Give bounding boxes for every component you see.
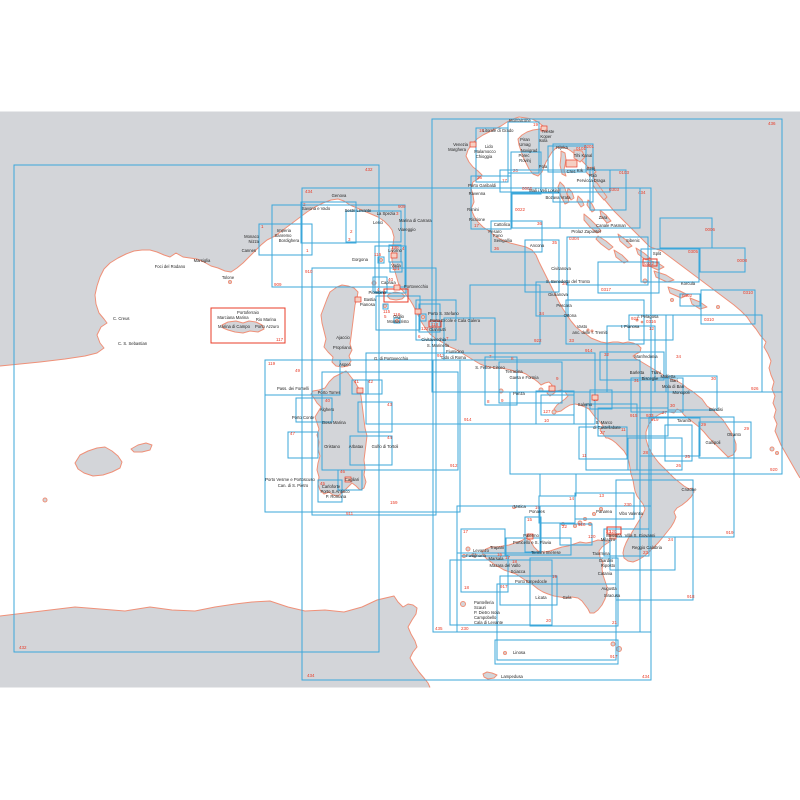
svg-text:0303: 0303 (609, 187, 620, 192)
svg-text:22: 22 (562, 524, 568, 529)
svg-text:21: 21 (612, 620, 618, 625)
svg-text:Pesaro: Pesaro (488, 229, 502, 234)
svg-text:35: 35 (552, 240, 558, 245)
svg-text:32: 32 (604, 352, 610, 357)
svg-text:Nizza: Nizza (249, 239, 260, 244)
svg-text:0304: 0304 (569, 236, 580, 241)
svg-text:Senj: Senj (587, 166, 595, 171)
svg-text:26: 26 (676, 463, 682, 468)
svg-text:117: 117 (276, 337, 284, 342)
svg-text:909: 909 (274, 282, 282, 287)
svg-text:Porticello e S. Flavia: Porticello e S. Flavia (513, 540, 552, 545)
svg-text:Vasto: Vasto (577, 324, 588, 329)
svg-text:Porto Vesme e Portoscuso: Porto Vesme e Portoscuso (265, 477, 315, 482)
svg-text:Pola: Pola (539, 164, 548, 169)
svg-text:920: 920 (770, 467, 778, 472)
svg-text:Bozava Vrata: Bozava Vrata (546, 195, 572, 200)
svg-text:912: 912 (450, 463, 458, 468)
svg-text:933: 933 (646, 413, 654, 418)
svg-text:Catania: Catania (598, 571, 613, 576)
svg-text:40: 40 (325, 398, 331, 403)
svg-text:Brindisi: Brindisi (709, 407, 723, 412)
svg-text:919: 919 (726, 530, 734, 535)
svg-text:30: 30 (711, 376, 717, 381)
svg-text:Gela: Gela (563, 595, 573, 600)
svg-text:Trapani: Trapani (490, 545, 504, 550)
svg-text:Porto Ercole e Cala Galera: Porto Ercole e Cala Galera (430, 318, 481, 323)
svg-text:Can. di S. Pietro: Can. di S. Pietro (278, 483, 309, 488)
svg-text:0305: 0305 (688, 249, 699, 254)
svg-text:0316: 0316 (646, 319, 657, 324)
svg-text:122: 122 (421, 326, 429, 331)
svg-text:Portovecchio: Portovecchio (404, 284, 429, 289)
svg-text:Chioggia: Chioggia (476, 154, 493, 159)
svg-text:Crotone: Crotone (682, 487, 698, 492)
svg-text:Montecristo: Montecristo (387, 319, 409, 324)
svg-text:0310: 0310 (704, 317, 715, 322)
svg-text:19: 19 (552, 574, 558, 579)
svg-text:25: 25 (685, 454, 691, 459)
svg-text:120: 120 (588, 534, 596, 539)
svg-text:Krk: Krk (577, 168, 584, 173)
svg-text:15: 15 (527, 517, 533, 522)
svg-text:17: 17 (463, 529, 469, 534)
svg-text:46: 46 (340, 469, 346, 474)
svg-text:Senigallia: Senigallia (494, 238, 513, 243)
svg-text:434: 434 (642, 674, 650, 679)
svg-text:Marsiglia: Marsiglia (194, 258, 211, 263)
svg-text:436: 436 (768, 121, 776, 126)
svg-text:12: 12 (649, 326, 655, 331)
svg-text:Prolaz Zapuntel: Prolaz Zapuntel (571, 229, 600, 234)
svg-text:Termini Imerese: Termini Imerese (531, 550, 561, 555)
svg-text:36: 36 (537, 221, 543, 226)
svg-text:Tolone: Tolone (222, 275, 235, 280)
svg-text:Messina: Messina (606, 533, 622, 538)
svg-text:Lerici: Lerici (373, 220, 383, 225)
svg-text:Propriano: Propriano (333, 345, 352, 350)
svg-text:Cagliari: Cagliari (345, 477, 359, 482)
svg-text:Pervicca Draga: Pervicca Draga (577, 178, 606, 183)
svg-text:Marciana Marina: Marciana Marina (217, 315, 249, 320)
svg-text:Vada: Vada (391, 263, 401, 268)
svg-text:Rovinj: Rovinj (519, 158, 531, 163)
svg-text:0006: 0006 (705, 227, 716, 232)
svg-text:Isola: Isola (539, 138, 549, 143)
svg-text:Arbatax: Arbatax (349, 444, 364, 449)
svg-text:119: 119 (268, 361, 276, 366)
svg-text:16: 16 (497, 552, 503, 557)
svg-text:di Castellabate: di Castellabate (593, 425, 621, 430)
svg-text:Cres: Cres (567, 169, 576, 174)
svg-text:159: 159 (390, 500, 398, 505)
svg-text:Terracina: Terracina (505, 369, 523, 374)
svg-text:13: 13 (599, 493, 605, 498)
svg-text:Riccione: Riccione (469, 217, 486, 222)
svg-text:Siracusa: Siracusa (604, 593, 621, 598)
svg-text:918: 918 (687, 594, 695, 599)
svg-text:127: 127 (543, 409, 551, 414)
svg-text:Ajaccio: Ajaccio (336, 335, 350, 340)
svg-text:Pescara: Pescara (556, 303, 572, 308)
svg-text:909: 909 (398, 204, 406, 209)
svg-text:910: 910 (305, 269, 313, 274)
svg-text:Porto S. Stefano: Porto S. Stefano (428, 311, 459, 316)
svg-text:Porto Torres: Porto Torres (318, 390, 341, 395)
svg-text:C. Creus: C. Creus (113, 316, 130, 321)
svg-text:43: 43 (387, 402, 393, 407)
svg-text:Bordighera: Bordighera (279, 238, 300, 243)
svg-text:926: 926 (751, 386, 759, 391)
svg-text:Sciacca: Sciacca (511, 569, 526, 574)
svg-text:911: 911 (346, 511, 354, 516)
svg-text:Novigrad: Novigrad (521, 148, 538, 153)
svg-text:Salerno: Salerno (578, 402, 593, 407)
svg-text:Cannes: Cannes (242, 248, 256, 253)
svg-text:34: 34 (539, 311, 545, 316)
svg-text:0310: 0310 (743, 290, 754, 295)
svg-text:Fiumicino: Fiumicino (446, 349, 465, 354)
svg-text:Gorgona: Gorgona (352, 257, 369, 262)
svg-text:Pass. dei Fornelli: Pass. dei Fornelli (277, 386, 309, 391)
svg-text:36: 36 (494, 246, 500, 251)
svg-text:17: 17 (474, 223, 480, 228)
svg-text:41: 41 (354, 379, 360, 384)
svg-text:434: 434 (638, 190, 646, 195)
svg-text:20: 20 (546, 618, 552, 623)
svg-text:Capraia: Capraia (381, 280, 396, 285)
svg-text:Panarea: Panarea (596, 509, 613, 514)
svg-text:917: 917 (500, 584, 508, 589)
svg-text:19: 19 (533, 122, 539, 127)
svg-text:Bastia: Bastia (364, 297, 376, 302)
svg-text:Ancona: Ancona (530, 243, 545, 248)
svg-text:Taranto: Taranto (677, 418, 692, 423)
svg-text:Giannutri: Giannutri (429, 327, 446, 332)
svg-text:0322: 0322 (644, 261, 655, 266)
svg-text:Marina di Carrara: Marina di Carrara (399, 218, 432, 223)
svg-text:anc. delle I. Tremiti: anc. delle I. Tremiti (572, 330, 607, 335)
svg-text:Mali i Veli Losinj: Mali i Veli Losinj (529, 188, 559, 193)
svg-text:Monfalcone: Monfalcone (509, 118, 531, 123)
svg-text:Porto Conte: Porto Conte (292, 415, 315, 420)
svg-text:Favignana: Favignana (466, 553, 486, 558)
svg-text:Umag: Umag (519, 142, 531, 147)
svg-text:G. di Portovecchio: G. di Portovecchio (374, 356, 409, 361)
svg-text:918: 918 (578, 522, 586, 527)
svg-text:922: 922 (534, 338, 542, 343)
svg-text:Viareggio: Viareggio (398, 227, 416, 232)
svg-text:S. Felice Circeo: S. Felice Circeo (475, 365, 505, 370)
svg-text:24: 24 (668, 537, 674, 542)
svg-text:Otranto: Otranto (727, 432, 742, 437)
svg-text:Zara: Zara (599, 215, 608, 220)
svg-text:Marina di Campo: Marina di Campo (218, 324, 251, 329)
svg-text:432: 432 (19, 645, 27, 650)
svg-text:Porto Garibaldi: Porto Garibaldi (468, 183, 496, 188)
svg-text:11: 11 (621, 427, 626, 432)
svg-text:Cala di Levante: Cala di Levante (474, 620, 504, 625)
svg-text:Lido di Roma: Lido di Roma (441, 355, 466, 360)
svg-text:917: 917 (610, 654, 618, 659)
svg-text:Manfredonia: Manfredonia (634, 354, 658, 359)
svg-text:434: 434 (305, 189, 313, 194)
svg-text:434: 434 (307, 673, 315, 678)
svg-text:Civitavecchia: Civitavecchia (421, 337, 446, 342)
svg-text:Monopoli: Monopoli (673, 390, 690, 395)
svg-text:0103: 0103 (619, 170, 630, 175)
svg-text:Rimini: Rimini (467, 207, 479, 212)
svg-text:Gaeta e Formia: Gaeta e Formia (509, 375, 539, 380)
svg-text:Ustica: Ustica (514, 504, 526, 509)
svg-text:Ponza: Ponza (513, 391, 526, 396)
svg-text:47: 47 (290, 431, 296, 436)
svg-text:Trani: Trani (651, 370, 660, 375)
svg-text:Ortona: Ortona (564, 313, 577, 318)
svg-text:Golfo di Tortoli: Golfo di Tortoli (372, 444, 399, 449)
svg-text:44: 44 (387, 435, 393, 440)
svg-text:Reggio Calabria: Reggio Calabria (632, 545, 663, 550)
svg-text:S. Marinella: S. Marinella (427, 343, 450, 348)
svg-text:18: 18 (512, 559, 518, 564)
svg-text:Sibenic: Sibenic (626, 238, 640, 243)
svg-text:Genova: Genova (332, 193, 347, 198)
svg-text:Linosa: Linosa (513, 650, 526, 655)
svg-text:Mola di Bari: Mola di Bari (662, 384, 684, 389)
svg-text:31: 31 (634, 378, 640, 383)
svg-text:Pianosa: Pianosa (360, 302, 376, 307)
svg-text:Giglio: Giglio (393, 314, 404, 319)
svg-text:0201: 0201 (584, 144, 595, 149)
svg-text:34: 34 (676, 354, 682, 359)
svg-text:Augusta: Augusta (601, 586, 617, 591)
svg-text:Canale Pasman: Canale Pasman (596, 223, 626, 228)
svg-text:914: 914 (464, 417, 472, 422)
svg-text:Aspeo: Aspeo (339, 362, 352, 367)
svg-text:49: 49 (295, 368, 301, 373)
svg-text:La Spezia: La Spezia (377, 211, 396, 216)
svg-text:Licata: Licata (535, 595, 547, 600)
svg-text:C. S. Sebastian: C. S. Sebastian (118, 341, 148, 346)
svg-text:Cattolica: Cattolica (494, 222, 511, 227)
svg-text:29: 29 (701, 422, 707, 427)
svg-text:Villa S. Giovanni: Villa S. Giovanni (625, 533, 656, 538)
svg-text:Sestri Levante: Sestri Levante (345, 208, 372, 213)
svg-text:Split: Split (653, 251, 662, 256)
svg-text:Tihi Kanal: Tihi Kanal (574, 153, 593, 158)
svg-text:14: 14 (569, 496, 575, 501)
svg-text:23: 23 (643, 550, 649, 555)
svg-text:Piombino: Piombino (369, 290, 387, 295)
svg-text:30: 30 (670, 403, 676, 408)
svg-text:Vibo Valentia: Vibo Valentia (619, 511, 644, 516)
svg-text:26: 26 (477, 175, 483, 180)
svg-text:S. Benedetto del Tronto: S. Benedetto del Tronto (546, 279, 591, 284)
svg-text:Rijeka: Rijeka (556, 145, 568, 150)
svg-text:Alghero: Alghero (320, 407, 335, 412)
svg-text:Ponares: Ponares (529, 509, 545, 514)
svg-text:Molfetta: Molfetta (661, 374, 677, 379)
svg-text:33: 33 (569, 338, 575, 343)
svg-text:Litorale di Grado: Litorale di Grado (483, 128, 515, 133)
svg-text:Bosa Marina: Bosa Marina (322, 420, 346, 425)
svg-text:Marghera: Marghera (448, 147, 467, 152)
svg-text:914: 914 (585, 348, 593, 353)
svg-text:230: 230 (461, 626, 469, 631)
svg-text:230: 230 (624, 502, 632, 507)
svg-text:Livorno: Livorno (388, 248, 402, 253)
svg-text:Porto Azzuro: Porto Azzuro (255, 324, 280, 329)
svg-text:Palermo: Palermo (523, 533, 539, 538)
svg-text:18: 18 (464, 585, 470, 590)
svg-text:Oristano: Oristano (324, 444, 340, 449)
svg-text:I. Pianosa: I. Pianosa (621, 324, 640, 329)
svg-text:Bisceglie: Bisceglie (642, 376, 659, 381)
svg-text:Civitanova: Civitanova (551, 266, 571, 271)
svg-text:915: 915 (630, 413, 638, 418)
svg-text:P. Romana: P. Romana (326, 494, 347, 499)
svg-text:116: 116 (374, 252, 382, 257)
svg-text:Giulianova: Giulianova (548, 292, 568, 297)
svg-text:Korcula: Korcula (681, 281, 696, 286)
svg-text:0402: 0402 (682, 293, 693, 298)
svg-text:28: 28 (643, 450, 649, 455)
svg-text:42: 42 (368, 379, 374, 384)
svg-text:10: 10 (544, 418, 550, 423)
svg-text:Rio Marina: Rio Marina (256, 317, 277, 322)
svg-text:Barletta: Barletta (630, 370, 645, 375)
svg-text:29: 29 (744, 426, 750, 431)
svg-text:Savona e Vado: Savona e Vado (302, 206, 331, 211)
svg-text:17: 17 (505, 555, 511, 560)
svg-text:Foci del Rodano: Foci del Rodano (155, 264, 186, 269)
svg-text:435: 435 (435, 626, 443, 631)
svg-text:Lampedusa: Lampedusa (501, 674, 524, 679)
svg-text:Gallipoli: Gallipoli (706, 440, 721, 445)
svg-text:27: 27 (600, 430, 606, 435)
svg-text:115: 115 (383, 309, 391, 314)
svg-text:Taormina: Taormina (592, 551, 610, 556)
svg-text:11: 11 (582, 453, 587, 458)
svg-text:0317: 0317 (601, 287, 612, 292)
svg-text:0008: 0008 (737, 258, 748, 263)
svg-text:Porto Empedocle: Porto Empedocle (515, 579, 548, 584)
svg-text:Ravenna: Ravenna (469, 191, 486, 196)
svg-text:0022: 0022 (515, 207, 526, 212)
svg-text:Riposto: Riposto (601, 563, 616, 568)
svg-text:432: 432 (365, 167, 373, 172)
